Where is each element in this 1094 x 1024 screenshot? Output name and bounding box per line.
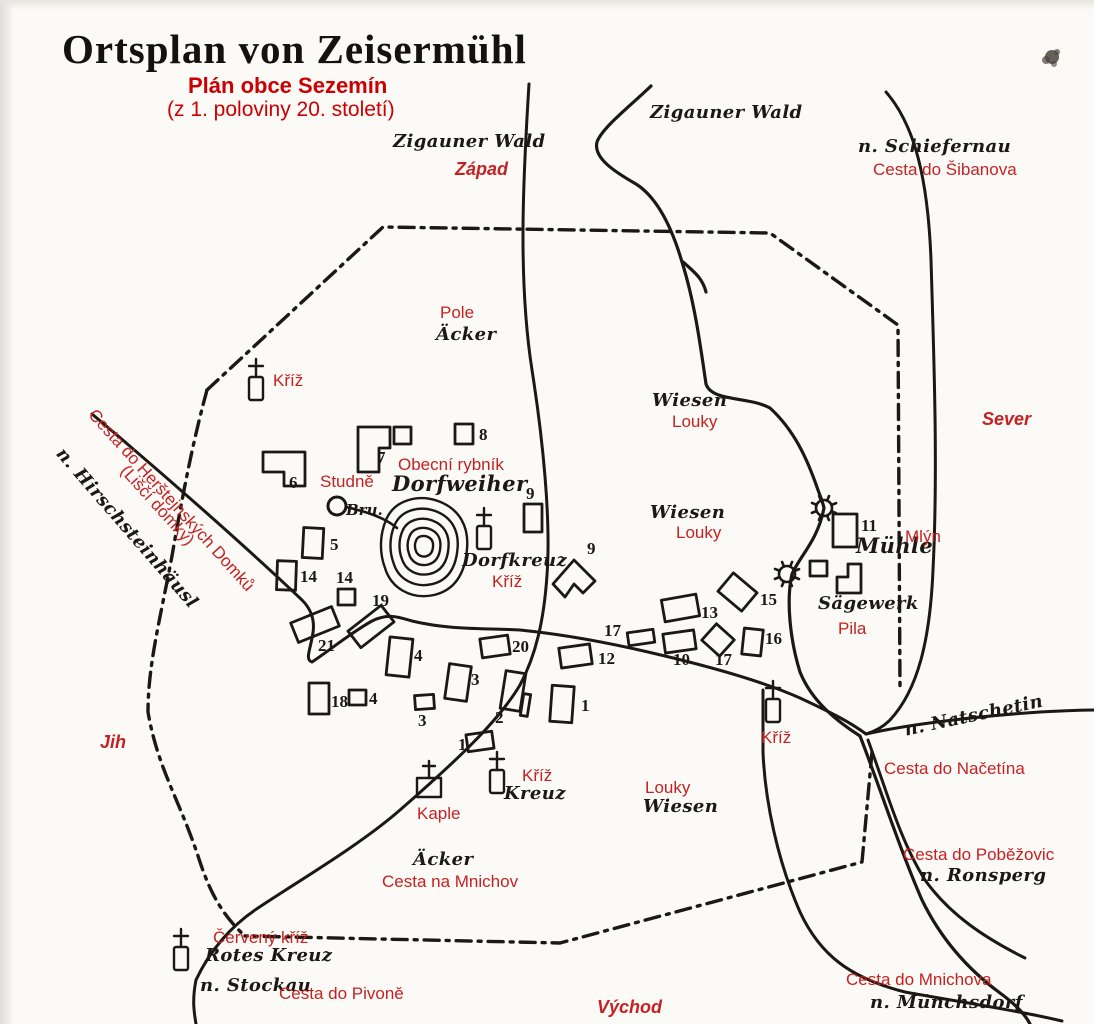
building-number-10: 10 xyxy=(673,650,690,669)
label-cesta-do-sibanova: Cesta do Šibanova xyxy=(873,161,1017,179)
label-kaple: Kaple xyxy=(417,805,460,823)
building-12 xyxy=(559,644,592,668)
building-number-13: 13 xyxy=(701,603,718,622)
building-number-1: 1 xyxy=(581,696,590,715)
kreuz-cross-icon xyxy=(490,752,504,793)
label-pila: Pila xyxy=(838,620,866,638)
building-17 xyxy=(627,629,655,645)
map-title-german: Ortsplan von Zeisermühl xyxy=(62,28,527,71)
dorfkreuz-cross-icon xyxy=(477,508,491,549)
building-number-17: 17 xyxy=(604,621,622,640)
label-cesta-do-pivone: Cesta do Pivoně xyxy=(279,985,404,1003)
label-vychod: Východ xyxy=(597,998,662,1017)
building-11 xyxy=(833,514,857,547)
building-number-3: 3 xyxy=(418,711,427,730)
label-dorfkreuz: Dorfkreuz xyxy=(462,552,567,571)
label-dorfweiher: Dorfweiher xyxy=(392,473,527,495)
label-sagewerk: Sägewerk xyxy=(818,595,919,614)
label-rotes-kreuz: Rotes Kreuz xyxy=(205,947,332,966)
label-louky-upper: Louky xyxy=(672,413,717,431)
label-zigauner-wald-west: Zigauner Wald xyxy=(393,133,546,152)
building xyxy=(394,427,411,444)
label-cesta-do-mnichova: Cesta do Mnichova xyxy=(846,971,992,989)
building-4 xyxy=(386,637,413,677)
building-number-17: 17 xyxy=(715,650,733,669)
building-number-7: 7 xyxy=(377,448,386,467)
building-4 xyxy=(349,690,366,705)
building-9 xyxy=(524,504,542,532)
label-acker-north: Äcker xyxy=(436,326,496,345)
label-n-ronsperg: n. Ronsperg xyxy=(920,867,1046,886)
building-number-9: 9 xyxy=(587,539,596,558)
map-title-czech: Plán obce Sezemín xyxy=(188,74,387,97)
building xyxy=(810,561,827,576)
building-number-4: 4 xyxy=(414,646,423,665)
label-n-schiefernau: n. Schiefernau xyxy=(858,138,1011,157)
label-mlyn: Mlýn xyxy=(905,528,941,546)
building-15 xyxy=(718,573,757,611)
building-number-15: 15 xyxy=(760,590,777,609)
label-studne: Studně xyxy=(320,473,374,491)
building-1 xyxy=(550,685,574,722)
label-wiesen-upper: Wiesen xyxy=(652,392,727,411)
label-wiesen-mid: Wiesen xyxy=(650,504,725,523)
building-number-18: 18 xyxy=(331,692,348,711)
label-sever: Sever xyxy=(982,410,1031,429)
village-well xyxy=(328,497,346,515)
label-kriz-nw: Kříž xyxy=(273,372,303,390)
building-3 xyxy=(445,664,472,702)
building-3 xyxy=(415,694,435,709)
label-kriz-dorfkreuz: Kříž xyxy=(492,573,522,591)
label-pole: Pole xyxy=(440,304,474,322)
label-acker-south: Äcker xyxy=(413,851,473,870)
wayside-cross-east-icon xyxy=(766,681,780,722)
building-18 xyxy=(309,683,329,714)
label-louky-south: Louky xyxy=(645,779,690,797)
building-16 xyxy=(742,628,764,656)
building-number-20: 20 xyxy=(512,637,529,656)
label-cesta-na-mnichov: Cesta na Mnichov xyxy=(382,873,518,891)
label-zapad: Západ xyxy=(455,160,508,179)
label-bru: Bru. xyxy=(346,503,383,519)
label-jih: Jih xyxy=(100,733,126,752)
label-kreuz: Kreuz xyxy=(504,785,566,804)
building-number-14: 14 xyxy=(336,568,354,587)
building-number-21: 21 xyxy=(318,636,335,655)
cadastral-boundary xyxy=(148,227,900,943)
building-number-6: 6 xyxy=(289,473,298,492)
ink-blot xyxy=(1042,49,1060,67)
building-number-1: 1 xyxy=(458,735,467,754)
label-kriz-east: Kříž xyxy=(761,729,791,747)
building-number-12: 12 xyxy=(598,649,615,668)
building-number-19: 19 xyxy=(372,591,389,610)
label-cesta-do-nacetina: Cesta do Načetína xyxy=(884,760,1025,778)
map-page: 8951414192142012171017161315318432111167… xyxy=(0,0,1094,1024)
label-louky-mid: Louky xyxy=(676,524,721,542)
building xyxy=(837,564,861,593)
map-title-note: (z 1. poloviny 20. století) xyxy=(167,99,395,121)
building-19 xyxy=(348,605,394,647)
building-number-4: 4 xyxy=(369,689,378,708)
building-number-8: 8 xyxy=(479,425,488,444)
building-number-3: 3 xyxy=(471,670,480,689)
symbols-layer xyxy=(174,49,1060,970)
building-14 xyxy=(338,589,355,605)
building-20 xyxy=(480,635,510,658)
label-cesta-do-pobezovic: Cesta do Poběžovic xyxy=(903,846,1054,864)
label-wiesen-south: Wiesen xyxy=(643,798,718,817)
building-8 xyxy=(455,424,473,444)
label-zigauner-wald-north: Zigauner Wald xyxy=(650,104,803,123)
building-number-2: 2 xyxy=(495,708,504,727)
building-number-16: 16 xyxy=(765,629,782,648)
rotes-kreuz-cross-icon xyxy=(174,929,188,970)
wayside-cross-nw-icon xyxy=(249,359,263,400)
label-n-munchsdorf: n. Münchsdorf xyxy=(870,994,1023,1013)
building-number-14: 14 xyxy=(300,567,318,586)
building xyxy=(520,694,530,717)
building-number-5: 5 xyxy=(330,535,339,554)
building-6 xyxy=(263,452,305,486)
building-5 xyxy=(302,527,324,558)
building-13 xyxy=(661,594,699,622)
